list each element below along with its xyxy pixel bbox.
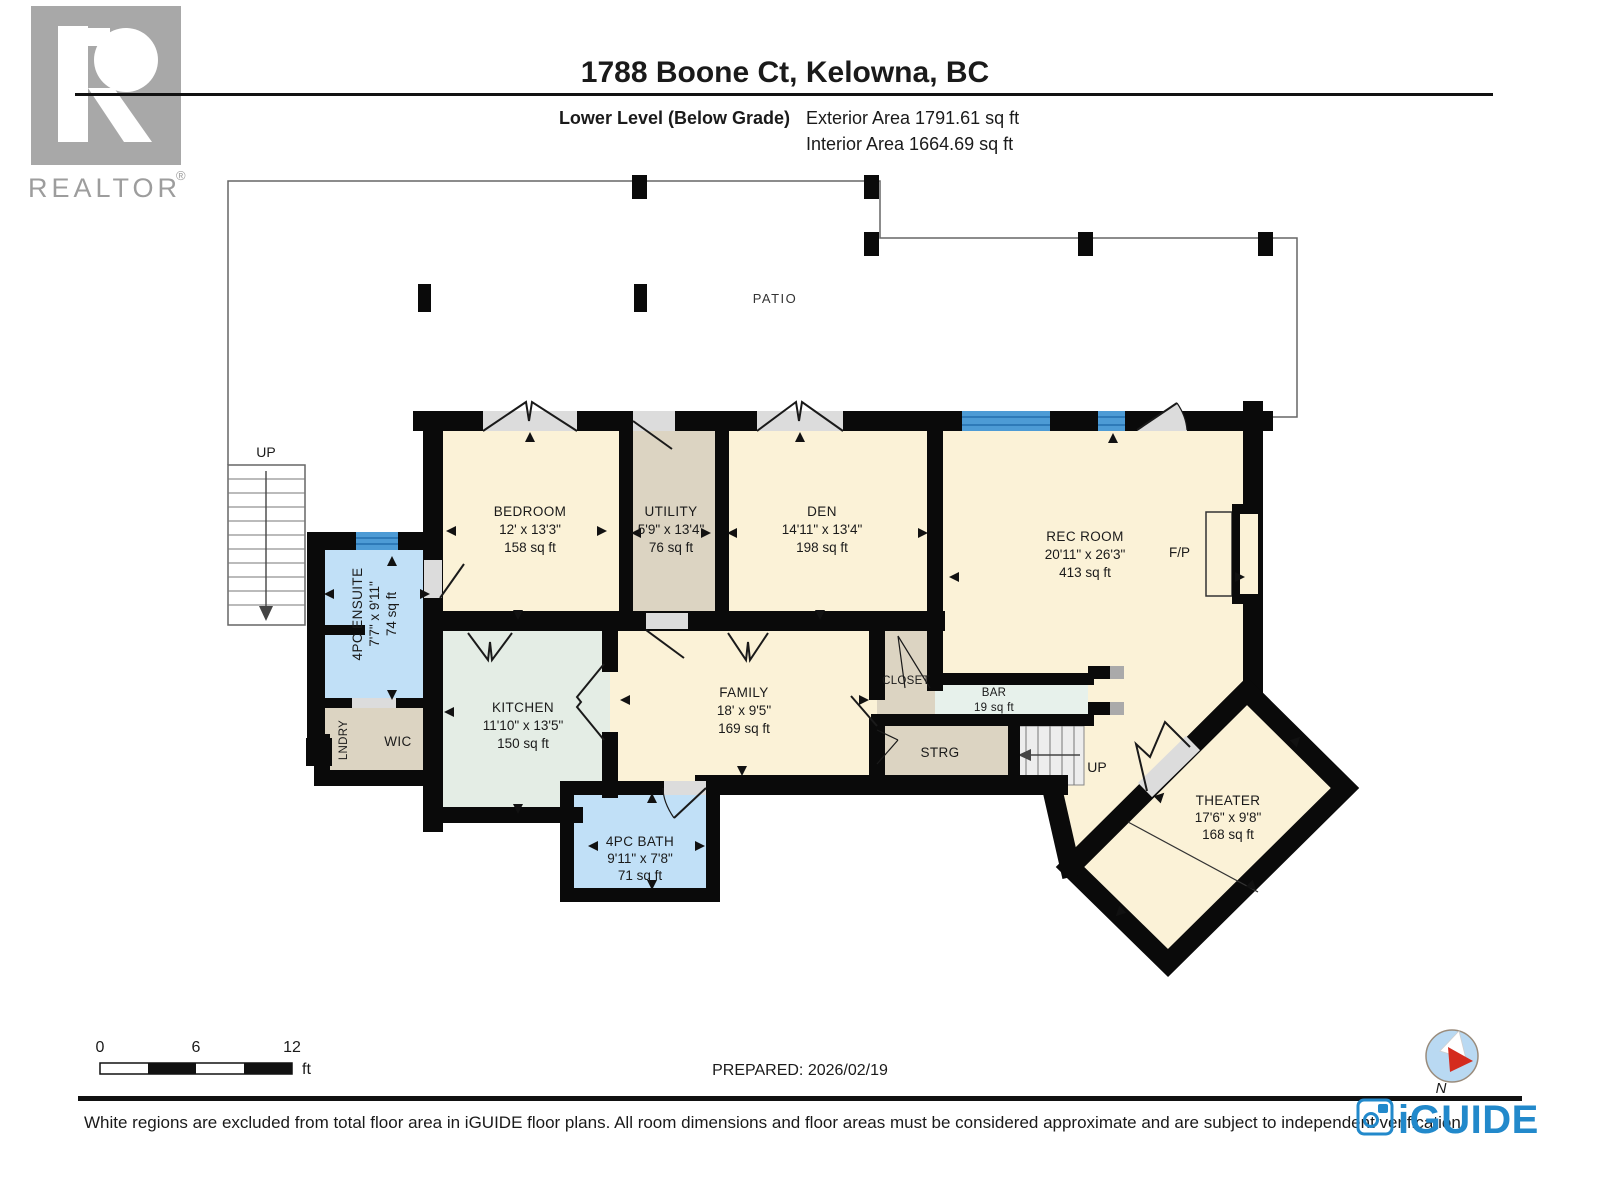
- bedroom-floor: [433, 421, 626, 621]
- floorplan-canvas: REALTOR ® 1788 Boone Ct, Kelowna, BC Low…: [0, 0, 1600, 1200]
- page-title: 1788 Boone Ct, Kelowna, BC: [581, 56, 989, 89]
- svg-text:11'10" x 13'5": 11'10" x 13'5": [483, 718, 564, 733]
- recroom-window: [962, 411, 1050, 431]
- svg-text:LNDRY: LNDRY: [338, 720, 350, 760]
- scale-unit: ft: [302, 1061, 311, 1078]
- utility-floor: [626, 421, 722, 621]
- svg-text:71 sq ft: 71 sq ft: [618, 868, 663, 883]
- closet-floor: [877, 621, 935, 720]
- realtor-registered-mark: ®: [176, 168, 186, 183]
- exterior-stairs: UP: [228, 444, 305, 625]
- scale-bar: 0 6 12 ft: [96, 1039, 312, 1078]
- svg-text:74 sq ft: 74 sq ft: [384, 592, 399, 637]
- closet-label: CLOSET: [882, 675, 930, 687]
- svg-text:FAMILY: FAMILY: [719, 685, 768, 700]
- bedroom-label: BEDROOM 12' x 13'3" 158 sq ft: [494, 504, 567, 555]
- compass: N: [1426, 1030, 1478, 1097]
- fireplace-label: F/P: [1169, 545, 1190, 560]
- compass-north-label: N: [1436, 1080, 1447, 1097]
- scale-tick-12: 12: [283, 1039, 301, 1056]
- svg-text:BEDROOM: BEDROOM: [494, 504, 567, 519]
- family-label: FAMILY 18' x 9'5" 169 sq ft: [717, 685, 771, 736]
- prepared-date: PREPARED: 2026/02/19: [712, 1062, 888, 1079]
- svg-text:UTILITY: UTILITY: [644, 504, 697, 519]
- realtor-logo: REALTOR ®: [28, 6, 186, 203]
- patio-post: [418, 284, 431, 312]
- interior-stairs-label: UP: [1087, 759, 1106, 775]
- recroom-window-small: [1098, 411, 1125, 431]
- iguide-brand-text: iGUIDE: [1398, 1098, 1539, 1142]
- svg-text:4PC BATH: 4PC BATH: [606, 834, 674, 849]
- room-fills: [316, 421, 1345, 963]
- scale-tick-6: 6: [192, 1039, 201, 1056]
- svg-text:KITCHEN: KITCHEN: [492, 700, 554, 715]
- svg-text:198 sq ft: 198 sq ft: [796, 540, 848, 555]
- patio-post: [864, 232, 879, 256]
- svg-text:REC ROOM: REC ROOM: [1046, 529, 1123, 544]
- interior-area: Interior Area 1664.69 sq ft: [806, 134, 1013, 154]
- patio-post: [632, 175, 647, 199]
- svg-text:14'11" x 13'4": 14'11" x 13'4": [782, 522, 863, 537]
- patio-post: [864, 175, 879, 199]
- ensuite-window: [356, 532, 398, 550]
- wic-floor: [316, 703, 433, 778]
- svg-text:169 sq ft: 169 sq ft: [718, 721, 770, 736]
- patio-post: [1078, 232, 1093, 256]
- svg-text:THEATER: THEATER: [1196, 793, 1261, 808]
- svg-text:20'11" x 26'3": 20'11" x 26'3": [1045, 547, 1126, 562]
- level-label: Lower Level (Below Grade): [559, 108, 790, 128]
- exterior-area: Exterior Area 1791.61 sq ft: [806, 108, 1019, 128]
- den-floor: [722, 421, 935, 621]
- patio-post: [1258, 232, 1273, 256]
- scale-tick-0: 0: [96, 1039, 105, 1056]
- svg-text:413 sq ft: 413 sq ft: [1059, 565, 1111, 580]
- svg-text:12' x 13'3": 12' x 13'3": [499, 522, 561, 537]
- svg-text:DEN: DEN: [807, 504, 837, 519]
- patio-label: PATIO: [753, 291, 798, 306]
- svg-text:BAR: BAR: [982, 687, 1007, 699]
- svg-text:19 sq ft: 19 sq ft: [974, 702, 1015, 714]
- disclaimer-text: White regions are excluded from total fl…: [84, 1113, 1466, 1132]
- footer-divider: [78, 1096, 1522, 1101]
- svg-text:168 sq ft: 168 sq ft: [1202, 827, 1254, 842]
- title-divider: [75, 93, 1493, 96]
- exterior-stairs-label: UP: [256, 444, 275, 460]
- svg-text:5'9" x 13'4": 5'9" x 13'4": [638, 522, 705, 537]
- svg-text:18' x 9'5": 18' x 9'5": [717, 703, 771, 718]
- wic-label: WIC: [384, 734, 411, 749]
- patio-post: [634, 284, 647, 312]
- svg-text:150 sq ft: 150 sq ft: [497, 736, 549, 751]
- realtor-label: REALTOR: [28, 173, 181, 203]
- lndry-label: LNDRY: [338, 720, 350, 760]
- strg-label: STRG: [920, 745, 959, 760]
- svg-text:4PC ENSUITE: 4PC ENSUITE: [350, 568, 365, 661]
- svg-text:7'7" x 9'11": 7'7" x 9'11": [367, 581, 382, 647]
- svg-text:17'6" x 9'8": 17'6" x 9'8": [1195, 810, 1262, 825]
- theater-label: THEATER 17'6" x 9'8" 168 sq ft: [1195, 793, 1262, 842]
- svg-text:76 sq ft: 76 sq ft: [649, 540, 694, 555]
- svg-text:9'11" x 7'8": 9'11" x 7'8": [607, 851, 673, 866]
- svg-text:158 sq ft: 158 sq ft: [504, 540, 556, 555]
